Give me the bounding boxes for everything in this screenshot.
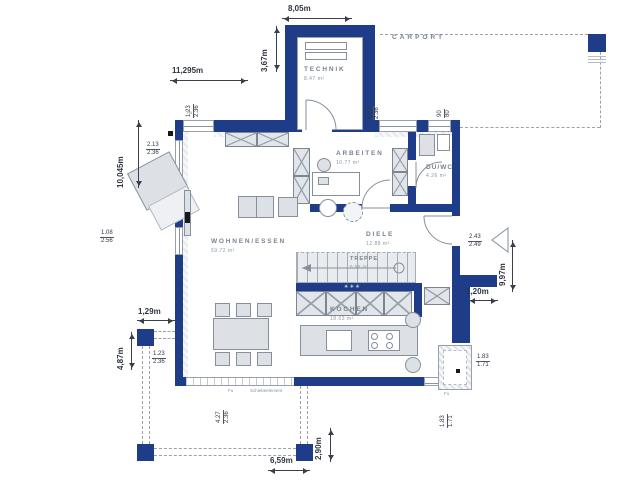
door-arc-entrance: [424, 216, 452, 244]
room-area-diele: 12.88 m²: [366, 241, 390, 247]
room-area-duwc: 4.26 m²: [426, 173, 446, 179]
window-label-sliding: 4.272.36: [216, 410, 231, 424]
sliding-element-label: Schiebeelement: [250, 388, 282, 393]
dim-house-width: 11,295m: [172, 66, 203, 75]
room-area-treppe: 5.06 m²: [350, 264, 369, 269]
dim-line-terrace-depth: [131, 332, 132, 370]
window-label-technik-right: 1.522.36: [366, 106, 381, 120]
dim-line-entry-offset: [468, 300, 498, 301]
window-label-entry: 2.432.49: [468, 234, 482, 249]
room-area-kochen: 18.03 m²: [330, 316, 354, 322]
door-arc-arbeiten: [362, 180, 390, 208]
window-label-top-right-small: 9080: [437, 109, 452, 118]
window-label-terrace-corner: 1.232.36: [152, 351, 166, 366]
dim-line-technik-depth: [276, 26, 277, 72]
floor-plan: CARPORT TECHNIK 8.47 m² ✳✳✳: [0, 0, 640, 480]
dim-entry-offset: 1,20m: [466, 287, 489, 296]
dim-line-terrace-offset: [137, 320, 175, 321]
floor-marker-2: Fu: [228, 388, 233, 393]
window-label-patio-right: 1.831.71: [476, 354, 490, 369]
symbol-overlay: [0, 0, 640, 480]
window-label-left-upper: 2.132.36: [146, 142, 160, 157]
dim-technik-depth: 3,67m: [260, 49, 269, 72]
dim-line-technik-width: [282, 18, 352, 19]
dim-line-right-depth: [512, 240, 513, 292]
room-label-wohnen-essen: WOHNEN/ESSEN: [211, 238, 286, 245]
dim-technik-width: 8,05m: [288, 4, 311, 13]
room-label-kochen: KOCHEN: [330, 306, 369, 313]
room-area-wohnen-essen: 59.72 m²: [211, 248, 235, 254]
dim-right-depth: 9,97m: [498, 263, 507, 286]
room-label-duwc: DU/WC: [426, 164, 453, 171]
dim-line-house-width: [170, 80, 248, 81]
room-label-treppe: TREPPE: [350, 256, 378, 262]
dim-terrace-width: 6,59m: [270, 456, 293, 465]
dim-terrace-offset: 1,29m: [138, 307, 161, 316]
dim-line-house-depth: [138, 120, 139, 188]
room-label-arbeiten: ARBEITEN: [336, 150, 384, 157]
dim-line-patio-depth: [330, 428, 331, 462]
dim-patio-depth: 2,90m: [314, 437, 323, 460]
dim-terrace-depth: 4,87m: [116, 347, 125, 370]
room-area-arbeiten: 10.77 m²: [336, 160, 360, 166]
door-arc-technik: [306, 100, 336, 130]
dim-line-terrace-width: [268, 470, 310, 471]
floor-marker-1: Fu: [187, 110, 192, 115]
dim-house-depth: 10,045m: [116, 156, 125, 188]
floor-marker-3: Fu: [444, 391, 449, 396]
entrance-arrow-icon: [492, 228, 508, 252]
room-label-diele: DIELE: [366, 231, 394, 238]
window-label-patio-bottom: 1.831.71: [440, 414, 455, 428]
window-label-left-lower: 1.082.56: [100, 230, 114, 245]
stair-walk-arrow: [302, 264, 311, 272]
